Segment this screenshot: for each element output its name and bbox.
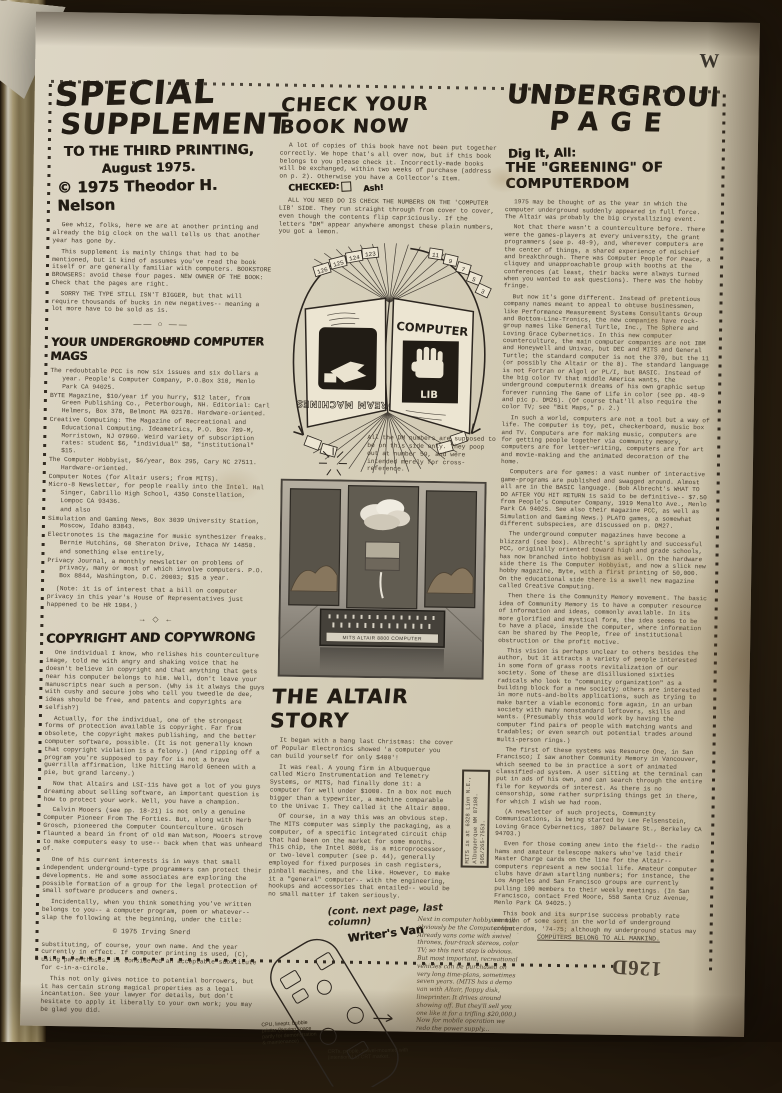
tab-number: 11 [431,252,440,260]
right-column: UNDERGROUND PAGE Dig It, All: THE "GREEN… [494,81,717,936]
checkbox-glyph [341,181,352,192]
page-number: 126D [610,954,662,982]
underground-text: 1975 may be thought of as the year in wh… [494,198,716,936]
supplement-title-line1: SPECIAL [53,74,276,111]
section-divider: —— ○ —— [51,318,271,330]
check-book-heading: CHECK YOUR BOOK NOW [279,92,500,138]
copyright-paragraph: One of his current interests is in ways … [42,856,263,898]
mags-note: (Note: it is of interest that a bill on … [47,585,267,612]
check-paragraph: ALL YOU NEED DO IS CHECK THE NUMBERS ON … [279,197,498,239]
section-divider: → ◇ ← [46,613,266,625]
checked-label: CHECKED: [279,182,339,195]
altair-paragraph: Of course, in a way this was an obvious … [268,813,453,902]
tab-number: 123 [365,250,377,258]
mits-address-text: MITS is at 6328 Linn N.E., Albuquerque N… [463,772,489,866]
lib-word: LIB [420,390,438,401]
writers-van-section: Writer's Van CPU, lineptr, bubble printe… [265,926,485,1089]
dream-machines-cover: DREAM MACHINES [295,297,397,429]
underground-paragraph: This book and its surprise success proba… [494,910,704,936]
underground-paragraph: Then there is the Community Memory movem… [498,592,709,647]
underground-paragraph: Not that there wasn't a counterculture b… [504,223,715,293]
copyright-paragraph: One individual I know, who relishes his … [45,649,266,715]
intro-paragraph: SORRY THE TYPE STILL ISN'T BIGGER, but t… [51,290,271,317]
altair-paragraph: It began with a bang last Christmas: the… [270,737,454,763]
underground-title-page: PAGE [505,108,717,139]
mits-address-box: MITS is at 6328 Linn N.E., Albuquerque N… [461,770,491,868]
greening-subtitle: THE "GREENING" OF COMPUTERDOM [505,160,715,192]
altair-story-section: It began with a bang last Christmas: the… [268,737,489,902]
fan-caption-text: All the DM numbers are supposed to be on… [367,434,500,475]
left-column: SPECIAL SUPPLEMENT TO THE THIRD PRINTING… [40,74,275,1020]
copyright-text: One individual I know, who relishes his … [42,649,266,925]
closing-text: substituting, of course, your own name. … [40,940,261,1017]
page-number-tabs-right: 11 9 7 5 3 [428,248,492,298]
middle-column: CHECK YOUR BOOK NOW A lot of copies of t… [265,92,499,1089]
mag-item: Creative Computing: The Magazine of Recr… [49,416,270,458]
copyright-paragraph: Incidentally, when you think something y… [42,898,262,925]
underground-paragraph: But now it's gone different. Instead of … [502,293,714,414]
intro-text: well Gee whiz, folks, here we are at ano… [51,221,272,316]
supplement-copyright: © 1975 Theodor H. Nelson [57,175,274,215]
copyright-paragraph: Now that Altairs and LSI-11s have got a … [44,780,264,807]
mag-item: Micro-8 Newsletter, for people really in… [48,481,268,508]
dream-machines-title: DREAM MACHINES [296,398,396,410]
corner-letter: W [699,50,719,73]
check-book-text: A lot of copies of this book have not be… [279,142,498,240]
underground-paragraph: The underground computer magazines have … [499,530,710,592]
copyright-paragraph: Calvin Mooers (see pp. 18-21) is not onl… [43,806,264,856]
supplement-title-line2: SUPPLEMENT [59,109,276,140]
underground-paragraph: In such a world, computers are not a too… [501,414,712,469]
supplement-title-line4: August 1975. [101,158,273,176]
starburst-mark [319,447,347,475]
altair-panel-label: MITS ALTAIR 8800 COMPUTER [342,635,422,642]
underground-paragraph: Computers are for games: a vast number o… [500,468,711,530]
altair-front-panel: MITS ALTAIR 8800 COMPUTER [320,609,445,647]
van-arrow [373,1010,392,1027]
van-annotation-left: CPU, lineptr, bubble printer (leaving sp… [261,1020,320,1047]
altair-story-heading: THE ALTAIR STORY [269,684,491,732]
mags-list: The redoubtable PCC is now six issues an… [47,367,271,612]
copyright-section-heading: COPYRIGHT AND COPYWRONG [46,629,267,646]
scanned-page: W SPECIAL SUPPLEMENT TO THE THIRD PRINTI… [20,12,760,1037]
top-fan-lines [313,242,466,303]
scanned-book-photo: { "page": { "corner_letter": "W", "page_… [0,0,782,1042]
altair-ad-illustration: MITS ALTAIR 8800 COMPUTER [278,479,487,680]
irving-snerd-copyright: © 1975 Irving Snerd [42,926,262,937]
altair-paragraph: It was real. A young firm in Albuquerque… [269,763,454,813]
altair-ad-drawing: MITS ALTAIR 8800 COMPUTER [278,479,487,680]
underground-paragraph: (A newsletter of such projects, Communit… [495,808,705,841]
mag-item: The redoubtable PCC is now six issues an… [50,367,270,394]
altair-story-text: It began with a bang last Christmas: the… [268,737,455,902]
intro-paragraph: This supplement is mainly things that ha… [52,248,273,290]
fan-diagram-caption: All the DM numbers are supposed to be on… [367,434,500,478]
underground-paragraph: This vision is perhaps unclear to others… [497,647,708,746]
underground-paragraph: Even for those coming anew into the fiel… [494,840,705,910]
check-paragraph-text: A lot of copies of this book have not be… [279,142,496,183]
closing-paragraph: substituting, of course, your own name. … [41,940,261,975]
closing-paragraph: This not only gives notice to potential … [40,975,261,1017]
computer-lib-cover: COMPUTER LIB [389,298,473,433]
check-paragraph: A lot of copies of this book have not be… [279,142,498,198]
checked-handwritten-note: Ash! [354,183,384,195]
intro-paragraph: Gee whiz, folks, here we are at another … [52,221,272,248]
underground-paragraph: 1975 may be thought of as the year in wh… [505,198,715,223]
mag-item: Privacy Journal, a monthly newsletter on… [47,556,267,583]
copyright-paragraph: Actually, for the individual, one of the… [44,715,265,781]
book-fan-diagram: DREAM MACHINES COMPUTER [275,239,497,478]
mags-section-heading: YOUR UNDERGROUND COMPUTER MAGS [50,335,272,363]
reflection [320,647,444,673]
underground-paragraph: The first of these systems was Resource … [496,746,707,808]
van-annotation-bottom: CRTs, people, swivel-mounted with (inten… [328,1048,420,1062]
mag-item: BYTE Magazine, $10/year if you hurry, $1… [50,392,270,419]
van-outline [262,935,407,1087]
dig-it-all-subtitle: Dig It, All: [508,143,716,161]
van-sketch [259,935,411,1087]
